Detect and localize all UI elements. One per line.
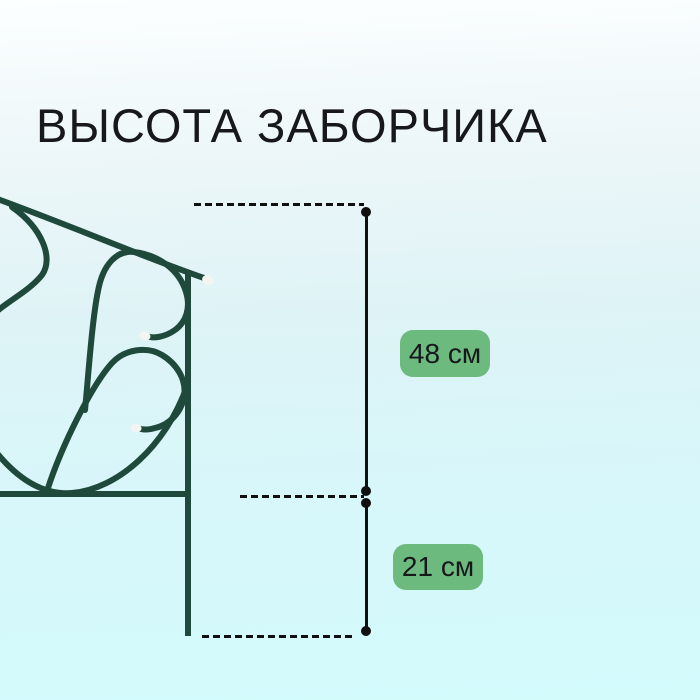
measure-endpoint-dot-bottom [361,626,371,636]
product-infographic: ВЫСОТА ЗАБОРЧИКА 48 см 21 см [0,0,700,700]
fence-leaf-swirl-lower [48,350,185,488]
fence-outer-ring-arc [0,386,187,493]
fence-leaf-swirl-top-left [0,207,47,312]
fence-illustration [0,0,700,700]
lower-measurement-badge: 21 см [393,544,483,590]
upper-measurement-label: 48 см [409,338,481,370]
lower-measurement-label: 21 см [402,551,474,583]
fence-top-rail [0,191,204,278]
measure-endpoint-dot-upper-bottom [361,486,371,496]
fence-leaf-swirl-upper [85,252,188,410]
fence-top-extent-dashed-line [194,203,364,206]
upper-measurement-badge: 48 см [400,330,490,377]
fence-rail-extent-dashed-line [240,495,364,498]
lower-measure-line [365,503,368,631]
ground-extent-dashed-line [202,635,356,638]
upper-measure-line [365,212,368,491]
